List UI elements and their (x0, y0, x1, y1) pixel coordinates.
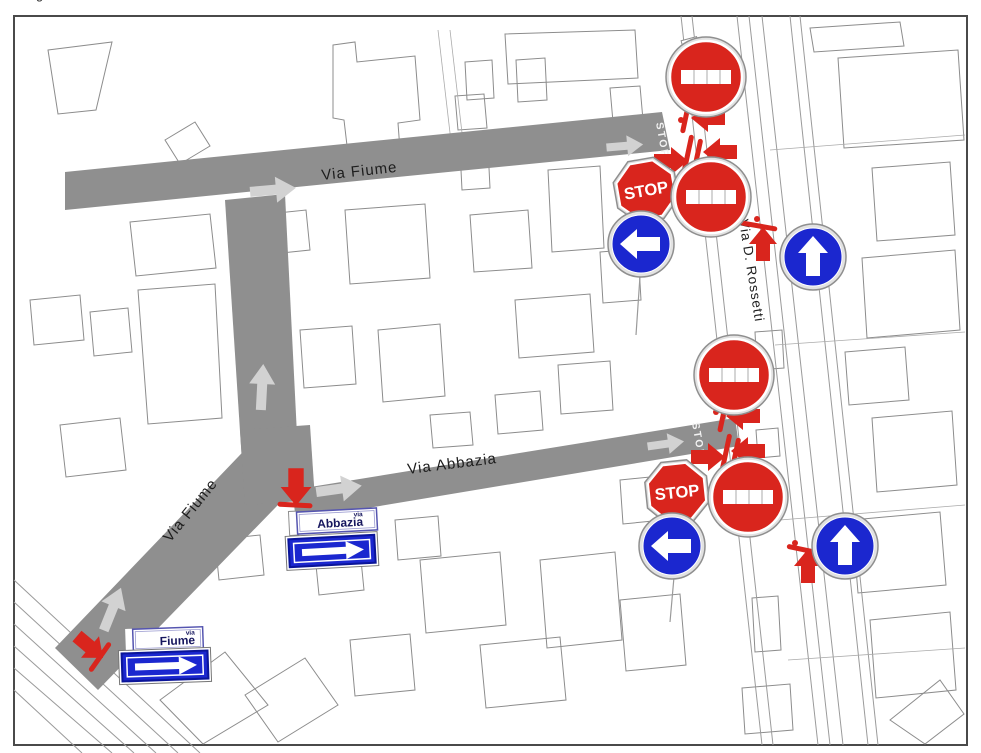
street-name-plate-abbazia: via Abbazia (288, 507, 377, 536)
closure-dot-icon (792, 540, 798, 546)
closure-dot-icon (754, 216, 760, 222)
no-entry-sign-icon (708, 457, 788, 537)
mandatory-up-sign-icon (812, 513, 878, 579)
plan-drawing: g (0, 0, 981, 753)
one-way-panel-icon (118, 647, 211, 684)
plate-name: Abbazia (317, 515, 364, 531)
mandatory-left-sign-icon (639, 513, 705, 579)
no-entry-sign-icon (671, 157, 751, 237)
edge-text-fragment: g (36, 0, 43, 2)
no-entry-sign-icon (694, 335, 774, 415)
mandatory-left-sign-icon (608, 211, 674, 277)
plate-name: Fiume (159, 633, 195, 648)
closure-dot-icon (678, 117, 684, 123)
mandatory-up-sign-icon (780, 224, 846, 290)
one-way-panel-icon (285, 532, 379, 571)
traffic-plan-map: g (0, 0, 981, 753)
road-closure-bar-icon (280, 504, 310, 506)
no-entry-sign-icon (666, 37, 746, 117)
